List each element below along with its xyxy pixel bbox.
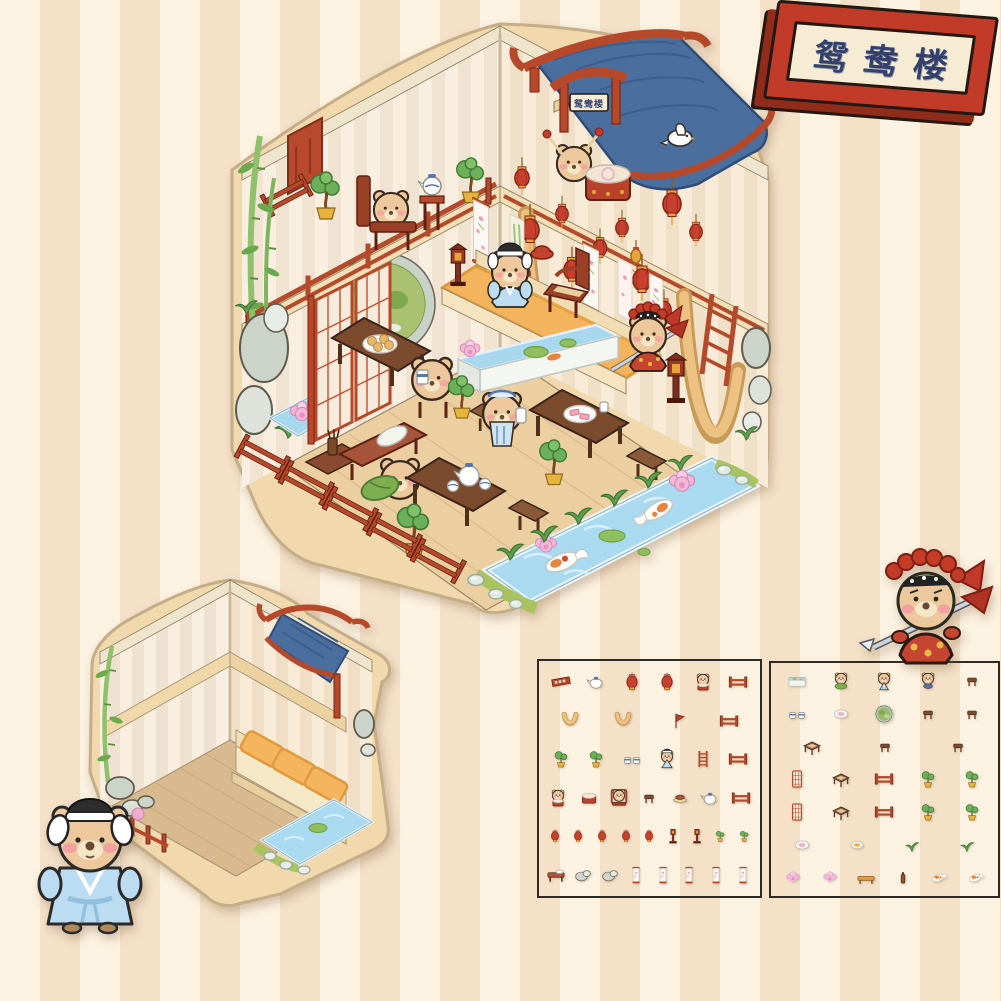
sticker-meat [669, 787, 691, 809]
sticker-moongate [873, 703, 895, 725]
sticker-scroll [625, 864, 647, 886]
sticker-cups [786, 703, 808, 725]
sticker-lantern-s [591, 825, 613, 847]
sticker-swag [559, 710, 581, 732]
sticker-bonsai [917, 801, 939, 823]
sticker-stool [638, 787, 660, 809]
sticker-table [801, 736, 823, 758]
sticker-bench-o [855, 867, 877, 889]
sticker-cups [621, 748, 643, 770]
sticker-teapot [585, 671, 607, 693]
sticker-teapot [699, 787, 721, 809]
sticker-bear-veggie [830, 670, 852, 692]
sticker-bear-chair [608, 787, 630, 809]
sticker-tank [786, 670, 808, 692]
sticker-rock [572, 864, 594, 886]
gate-plaque-text: 鸳鸯楼 [574, 98, 604, 110]
sticker-banner [665, 710, 687, 732]
sticker-plate [830, 703, 852, 725]
sticker-plaque [550, 671, 572, 693]
sticker-lantern-s [567, 825, 589, 847]
sticker-fence [730, 787, 752, 809]
sticker-lamp [686, 825, 708, 847]
sticker-bonsai-s [709, 825, 731, 847]
sticker-grass [901, 834, 923, 856]
sticker-lantern-s [544, 825, 566, 847]
product-image: 鸳鸯楼 [0, 0, 1001, 1001]
sticker-lantern [621, 671, 643, 693]
sticker-plate [791, 834, 813, 856]
sticker-fence [727, 671, 749, 693]
sticker-bonsai-s [733, 825, 755, 847]
sign-plaque: 鸳鸯楼 [786, 21, 976, 95]
sticker-stool [947, 736, 969, 758]
sticker-grass [956, 834, 978, 856]
sticker-bottle [892, 867, 914, 889]
sticker-table [830, 768, 852, 790]
sticker-bonsai [961, 801, 983, 823]
sticker-swag [612, 710, 634, 732]
sticker-fence [718, 710, 740, 732]
sticker-fence [873, 768, 895, 790]
sticker-drum [578, 787, 600, 809]
main-scene-sticker: 鸳鸯楼 [224, 18, 770, 618]
sticker-stool [961, 670, 983, 692]
sticker-bear-apron [873, 670, 895, 692]
sticker-lantern-s [638, 825, 660, 847]
sticker-door [786, 768, 808, 790]
sticker-lotus [782, 867, 804, 889]
sticker-fence [727, 748, 749, 770]
sticker-door [786, 801, 808, 823]
sign-frame: 鸳鸯楼 [763, 0, 999, 116]
sticker-lantern-s [615, 825, 637, 847]
sticker-stool [961, 703, 983, 725]
sticker-sheet-2 [769, 661, 1000, 898]
sticker-scroll [705, 864, 727, 886]
sticker-plate-y [846, 834, 868, 856]
sticker-stool [917, 703, 939, 725]
scholar-bear-character [26, 790, 154, 938]
sticker-koi [928, 867, 950, 889]
sticker-lamp [662, 825, 684, 847]
sticker-bonsai [550, 748, 572, 770]
sticker-lantern [656, 671, 678, 693]
sticker-koi [965, 867, 987, 889]
sticker-stool [874, 736, 896, 758]
sign-text: 鸳鸯楼 [795, 27, 968, 89]
sticker-bonsai [585, 748, 607, 770]
sticker-table [830, 801, 852, 823]
door-panel [316, 282, 352, 440]
sticker-scroll [678, 864, 700, 886]
sticker-bear-scholar [656, 748, 678, 770]
drum [586, 165, 630, 200]
sticker-scroll [652, 864, 674, 886]
sticker-fence [873, 801, 895, 823]
sticker-lotus [819, 867, 841, 889]
sticker-scroll [732, 864, 754, 886]
sticker-bonsai [917, 768, 939, 790]
scholar-bear-stage [488, 243, 532, 307]
sticker-bear-drum [692, 671, 714, 693]
opera-bear-character [856, 545, 1001, 669]
sticker-sheet-1 [537, 659, 762, 898]
sticker-rock [599, 864, 621, 886]
sticker-bear-drum [547, 787, 569, 809]
sticker-bench [545, 864, 567, 886]
sticker-bear-bowl [917, 670, 939, 692]
sticker-bonsai [961, 768, 983, 790]
sticker-ladder [692, 748, 714, 770]
hanging-sign: 鸳鸯楼 [763, 0, 999, 116]
